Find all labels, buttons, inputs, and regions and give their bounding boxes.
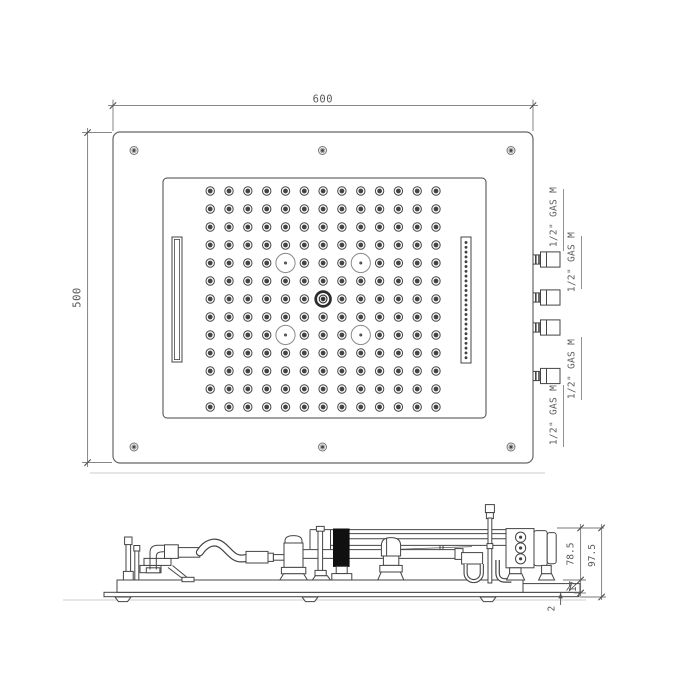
slot-dot: [465, 328, 467, 330]
connection-label-1: 1/2" GAS M: [549, 187, 560, 247]
nozzle-center: [227, 369, 231, 373]
nozzle-center: [302, 225, 306, 229]
nozzle-center: [284, 243, 288, 247]
nozzle-center: [284, 297, 288, 301]
t-valve: [280, 536, 308, 580]
nozzle-center: [284, 387, 288, 391]
knob-center: [321, 297, 325, 301]
slot-dot: [465, 323, 467, 325]
nozzle-center: [378, 261, 382, 265]
slot-dot: [465, 357, 467, 359]
nozzle-center: [265, 387, 269, 391]
nozzle-center: [321, 405, 325, 409]
nozzle-center: [246, 297, 250, 301]
screw-center: [510, 446, 512, 448]
nozzle-center: [246, 207, 250, 211]
nozzle-center: [227, 261, 231, 265]
nozzle-center: [246, 315, 250, 319]
nozzle-center: [434, 297, 438, 301]
nozzle-center: [340, 333, 344, 337]
nozzle-center: [434, 189, 438, 193]
dim-height-label: 500: [71, 287, 83, 307]
screw-center: [322, 446, 324, 448]
nozzle-center: [397, 369, 401, 373]
nozzle-center: [302, 279, 306, 283]
nozzle-center: [415, 243, 419, 247]
nozzle-center: [434, 279, 438, 283]
nozzle-center: [359, 207, 363, 211]
nozzle-center: [340, 369, 344, 373]
nozzle-center: [246, 387, 250, 391]
slot-dot: [465, 338, 467, 340]
right-valve-unit: [506, 529, 556, 580]
connection-label-4: 1/2" GAS M: [549, 385, 560, 445]
nozzle-center: [359, 315, 363, 319]
gas-stub: [533, 290, 560, 305]
nozzle-center: [265, 207, 269, 211]
dim-2-label: 2: [547, 606, 558, 612]
nozzle-center: [246, 279, 250, 283]
spotlight-center: [360, 334, 362, 336]
nozzle-center: [265, 189, 269, 193]
nozzle-center: [434, 315, 438, 319]
nozzle-center: [265, 261, 269, 265]
screw-center: [510, 150, 512, 152]
nozzle-center: [340, 243, 344, 247]
nozzle-center: [340, 261, 344, 265]
top-view: 1/2" GAS M 1/2" GAS M 1/2" GAS M 1/2" GA…: [71, 94, 581, 473]
slot-dot: [465, 347, 467, 349]
panel-plate-side: [104, 592, 579, 596]
nozzle-center: [340, 387, 344, 391]
nozzle-center: [227, 243, 231, 247]
nozzle-center: [321, 243, 325, 247]
nozzle-center: [265, 369, 269, 373]
nozzle-center: [378, 369, 382, 373]
nozzle-center: [284, 225, 288, 229]
dimension-height: [82, 128, 112, 467]
nozzle-center: [302, 243, 306, 247]
nozzle-center: [265, 297, 269, 301]
spotlight-center: [360, 262, 362, 264]
nozzle-center: [265, 351, 269, 355]
connection-label-3: 1/2" GAS M: [567, 339, 578, 399]
slot-dot: [465, 299, 467, 301]
nozzle-center: [397, 405, 401, 409]
nozzle-center: [359, 387, 363, 391]
nozzle-center: [434, 261, 438, 265]
nozzle-center: [302, 189, 306, 193]
nozzle-center: [340, 315, 344, 319]
nozzle-center: [227, 387, 231, 391]
nozzle-center: [284, 189, 288, 193]
slot-dot: [465, 309, 467, 311]
side-view: 78.5 97.5 17 2: [63, 505, 606, 612]
nozzle-center: [246, 225, 250, 229]
nozzle-center: [227, 279, 231, 283]
nozzle-center: [284, 207, 288, 211]
nozzle-center: [302, 297, 306, 301]
nozzle-center: [284, 279, 288, 283]
gas-stub: [533, 252, 560, 267]
nozzle-center: [359, 225, 363, 229]
nozzle-center: [415, 189, 419, 193]
nozzle-center: [302, 315, 306, 319]
nozzle-center: [227, 297, 231, 301]
vertical-rod: [485, 505, 494, 583]
nozzle-center: [246, 333, 250, 337]
slot-dot: [465, 352, 467, 354]
nozzle-center: [415, 315, 419, 319]
slot-dot: [465, 270, 467, 272]
nozzle-center: [321, 279, 325, 283]
nozzle-center: [284, 351, 288, 355]
slot-dot: [465, 304, 467, 306]
slot-dot: [465, 285, 467, 287]
nozzle-center: [321, 315, 325, 319]
spotlight-center: [285, 334, 287, 336]
nozzle-center: [321, 369, 325, 373]
nozzle-center: [434, 333, 438, 337]
nozzle-center: [227, 189, 231, 193]
nozzle-center: [434, 243, 438, 247]
nozzle-center: [378, 243, 382, 247]
slot-dot: [465, 246, 467, 248]
nozzle-center: [321, 225, 325, 229]
nozzle-center: [378, 315, 382, 319]
nozzle-center: [302, 351, 306, 355]
nozzle-center: [208, 315, 212, 319]
nozzle-center: [321, 351, 325, 355]
nozzle-center: [208, 207, 212, 211]
nozzle-center: [302, 405, 306, 409]
left-waterfall-slot: [172, 237, 182, 362]
short-pipe: [273, 555, 284, 561]
u-clamp: [462, 553, 483, 581]
nozzle-center: [208, 279, 212, 283]
nozzle-center: [208, 369, 212, 373]
slot-dot: [465, 333, 467, 335]
flex-hose: [200, 543, 248, 559]
dim-17-label: 17: [568, 581, 579, 592]
hose-nut: [165, 545, 179, 559]
nozzle-center: [321, 189, 325, 193]
nozzle-center: [340, 405, 344, 409]
nozzle-center: [415, 225, 419, 229]
slot-dot: [465, 251, 467, 253]
dim-78-label: 78.5: [565, 543, 576, 566]
nozzle-center: [302, 333, 306, 337]
nozzle-center: [434, 351, 438, 355]
nozzle-center: [302, 207, 306, 211]
nozzle-center: [208, 405, 212, 409]
nozzle-center: [340, 297, 344, 301]
nozzle-center: [246, 261, 250, 265]
connection-label-2: 1/2" GAS M: [567, 232, 578, 292]
nozzle-center: [227, 333, 231, 337]
nozzle-center: [208, 333, 212, 337]
nozzle-center: [397, 189, 401, 193]
nozzle-center: [378, 207, 382, 211]
nozzle-center: [284, 405, 288, 409]
slot-dot: [465, 242, 467, 244]
nozzle-center: [378, 279, 382, 283]
nozzle-center: [246, 369, 250, 373]
slot-dot: [465, 280, 467, 282]
slot-dot: [465, 256, 467, 258]
nozzle-center: [208, 225, 212, 229]
slot-dot: [465, 261, 467, 263]
nozzle-center: [415, 387, 419, 391]
nozzle-center: [340, 279, 344, 283]
gas-stub: [533, 368, 560, 383]
hose-end-ring: [268, 553, 273, 561]
dim-97-label: 97.5: [587, 544, 598, 567]
nozzle-center: [265, 225, 269, 229]
nozzle-center: [359, 243, 363, 247]
nozzle-center: [415, 279, 419, 283]
nozzle-center: [397, 225, 401, 229]
screw-center: [133, 150, 135, 152]
nozzle-center: [208, 387, 212, 391]
left-pin-assembly: [123, 537, 194, 582]
solenoid-body: [334, 529, 350, 566]
nozzle-center: [208, 351, 212, 355]
nozzle-center: [397, 297, 401, 301]
support-bolt: [312, 526, 330, 580]
center-knob: [316, 292, 331, 307]
nozzle-center: [415, 297, 419, 301]
nozzle-center: [302, 261, 306, 265]
hose-end-fitting: [246, 551, 268, 563]
nozzle-center: [227, 351, 231, 355]
nozzle-center: [246, 351, 250, 355]
nozzle-center: [378, 405, 382, 409]
nozzle-center: [340, 351, 344, 355]
connection-labels: 1/2" GAS M 1/2" GAS M 1/2" GAS M 1/2" GA…: [549, 187, 578, 445]
slot-dot: [465, 290, 467, 292]
nozzle-center: [265, 279, 269, 283]
nozzle-center: [359, 189, 363, 193]
drawing-page: 1/2" GAS M 1/2" GAS M 1/2" GAS M 1/2" GA…: [0, 0, 700, 700]
screw-center: [133, 446, 135, 448]
nozzle-center: [302, 369, 306, 373]
nozzle-center: [340, 207, 344, 211]
nozzle-center: [359, 297, 363, 301]
technical-drawing: 1/2" GAS M 1/2" GAS M 1/2" GAS M 1/2" GA…: [0, 0, 700, 700]
spotlight-center: [285, 262, 287, 264]
screw-center: [322, 150, 324, 152]
nozzle-center: [265, 405, 269, 409]
nozzle-center: [397, 333, 401, 337]
nozzle-center: [321, 387, 325, 391]
slot-dot: [465, 314, 467, 316]
nozzle-center: [378, 351, 382, 355]
nozzle-center: [340, 225, 344, 229]
nozzle-center: [434, 225, 438, 229]
nozzle-center: [415, 261, 419, 265]
connection-leader-lines: [564, 189, 582, 447]
gas-connection-stubs: [533, 252, 560, 384]
nozzle-center: [378, 333, 382, 337]
gas-stub: [533, 320, 560, 335]
slot-dot: [465, 318, 467, 320]
nozzle-center: [434, 207, 438, 211]
nozzle-center: [415, 369, 419, 373]
nozzle-center: [227, 225, 231, 229]
plate-feet: [115, 597, 496, 602]
nozzle-center: [397, 315, 401, 319]
nozzle-center: [359, 369, 363, 373]
solenoid-support: [332, 566, 352, 580]
nozzle-center: [284, 315, 288, 319]
nozzle-center: [265, 315, 269, 319]
slot-dot: [465, 275, 467, 277]
nozzle-center: [208, 261, 212, 265]
nozzle-center: [246, 405, 250, 409]
nozzle-center: [378, 297, 382, 301]
nozzle-center: [227, 405, 231, 409]
nozzle-center: [208, 297, 212, 301]
nozzle-center: [397, 279, 401, 283]
nozzle-center: [340, 189, 344, 193]
frame-bar-side: [117, 580, 523, 592]
nozzle-center: [378, 387, 382, 391]
nozzle-center: [434, 387, 438, 391]
nozzle-center: [284, 369, 288, 373]
nozzle-center: [246, 243, 250, 247]
nozzle-center: [321, 333, 325, 337]
nozzle-center: [415, 333, 419, 337]
nozzle-center: [208, 243, 212, 247]
nozzle-center: [397, 387, 401, 391]
nozzle-center: [321, 261, 325, 265]
slot-dot: [465, 294, 467, 296]
nozzle-center: [265, 333, 269, 337]
nozzle-center: [359, 405, 363, 409]
nozzle-center: [378, 189, 382, 193]
nozzle-center: [415, 207, 419, 211]
nozzle-center: [227, 315, 231, 319]
dim-width-label: 600: [313, 94, 333, 106]
slot-dot: [465, 266, 467, 268]
nozzle-center: [415, 351, 419, 355]
nozzle-center: [265, 243, 269, 247]
nozzle-center: [321, 207, 325, 211]
nozzle-center: [415, 405, 419, 409]
slot-dot: [465, 342, 467, 344]
nozzle-center: [397, 351, 401, 355]
nozzle-center: [208, 189, 212, 193]
nozzle-center: [246, 189, 250, 193]
nozzle-center: [302, 387, 306, 391]
nozzle-center: [227, 207, 231, 211]
nozzle-center: [397, 261, 401, 265]
nozzle-center: [397, 243, 401, 247]
nozzle-center: [434, 369, 438, 373]
nozzle-center: [359, 351, 363, 355]
nozzle-center: [397, 207, 401, 211]
nozzle-center: [359, 279, 363, 283]
nozzle-center: [378, 225, 382, 229]
nozzle-center: [434, 405, 438, 409]
